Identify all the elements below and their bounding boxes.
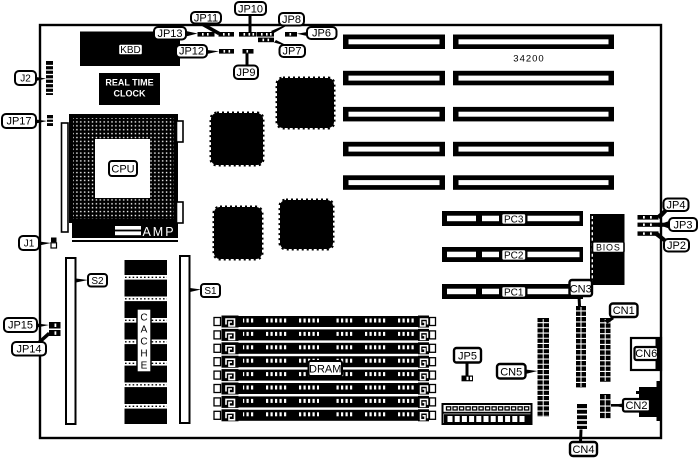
svg-text:H: H [140,349,147,360]
svg-text:JP9: JP9 [237,67,256,79]
svg-text:CLOCK: CLOCK [114,89,146,99]
svg-text:JP6: JP6 [312,28,331,40]
svg-text:PC3: PC3 [504,214,524,225]
svg-text:E: E [141,361,148,372]
svg-text:DRAM: DRAM [309,364,341,376]
svg-text:KBD: KBD [120,45,141,56]
svg-text:J1: J1 [24,239,35,250]
svg-text:CN5: CN5 [500,367,522,379]
svg-text:REAL TIME: REAL TIME [105,78,153,88]
svg-text:JP13: JP13 [157,28,182,40]
svg-text:CPU: CPU [111,164,134,176]
svg-text:A: A [141,325,148,336]
svg-text:JP4: JP4 [667,200,686,212]
svg-text:S1: S1 [204,286,217,297]
svg-text:CN6: CN6 [635,348,657,360]
svg-text:JP17: JP17 [6,116,31,128]
svg-text:AMP: AMP [142,225,175,239]
svg-text:J2: J2 [20,74,31,85]
svg-text:JP10: JP10 [238,4,263,16]
svg-text:JP11: JP11 [194,13,218,25]
svg-text:C: C [140,337,147,348]
svg-text:BIOS: BIOS [596,243,621,253]
svg-text:JP15: JP15 [8,320,33,332]
svg-text:34200: 34200 [513,54,544,65]
svg-text:PC2: PC2 [504,250,524,261]
svg-text:CN1: CN1 [613,305,635,317]
svg-text:PC1: PC1 [504,287,524,298]
svg-text:JP7: JP7 [283,46,302,58]
svg-text:JP8: JP8 [282,14,301,26]
svg-text:CN2: CN2 [625,400,647,412]
svg-text:JP2: JP2 [667,240,686,252]
svg-text:CN4: CN4 [572,444,594,456]
svg-text:JP5: JP5 [458,351,477,363]
svg-text:JP12: JP12 [179,46,204,58]
svg-text:CN3: CN3 [570,284,592,296]
svg-text:S2: S2 [91,276,104,287]
svg-text:C: C [140,313,147,324]
svg-text:JP14: JP14 [16,344,41,356]
svg-text:JP3: JP3 [674,219,693,231]
